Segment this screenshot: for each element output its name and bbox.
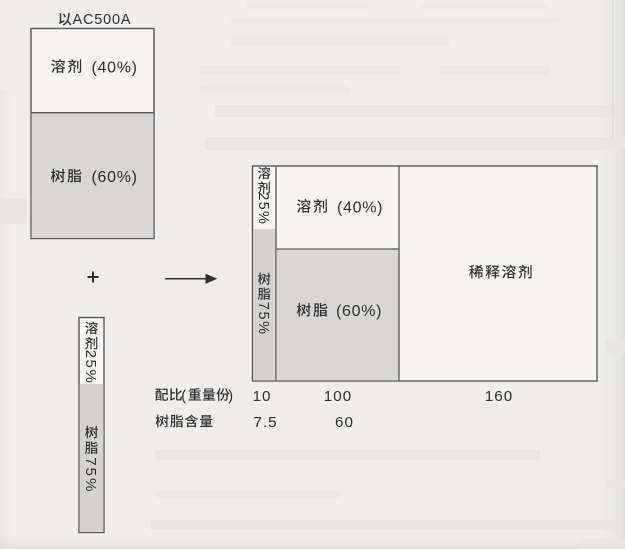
svg-text:25%: 25%	[82, 350, 99, 385]
svg-text:10: 10	[253, 388, 272, 405]
svg-text:7.5: 7.5	[254, 414, 278, 431]
svg-text:(40%): (40%)	[337, 199, 383, 216]
svg-text:(60%): (60%)	[336, 303, 382, 320]
svg-text:100: 100	[324, 388, 352, 405]
svg-text:160: 160	[485, 388, 513, 405]
svg-text:AC500A: AC500A	[73, 12, 132, 28]
svg-text:(40%): (40%)	[92, 60, 138, 77]
svg-text:): )	[228, 388, 233, 404]
svg-text:75%: 75%	[82, 457, 99, 493]
svg-text:(: (	[181, 388, 186, 404]
svg-text:(60%): (60%)	[92, 169, 138, 186]
svg-text:60: 60	[335, 414, 354, 431]
svg-text:75%: 75%	[255, 302, 271, 336]
svg-text:25%: 25%	[255, 192, 271, 225]
